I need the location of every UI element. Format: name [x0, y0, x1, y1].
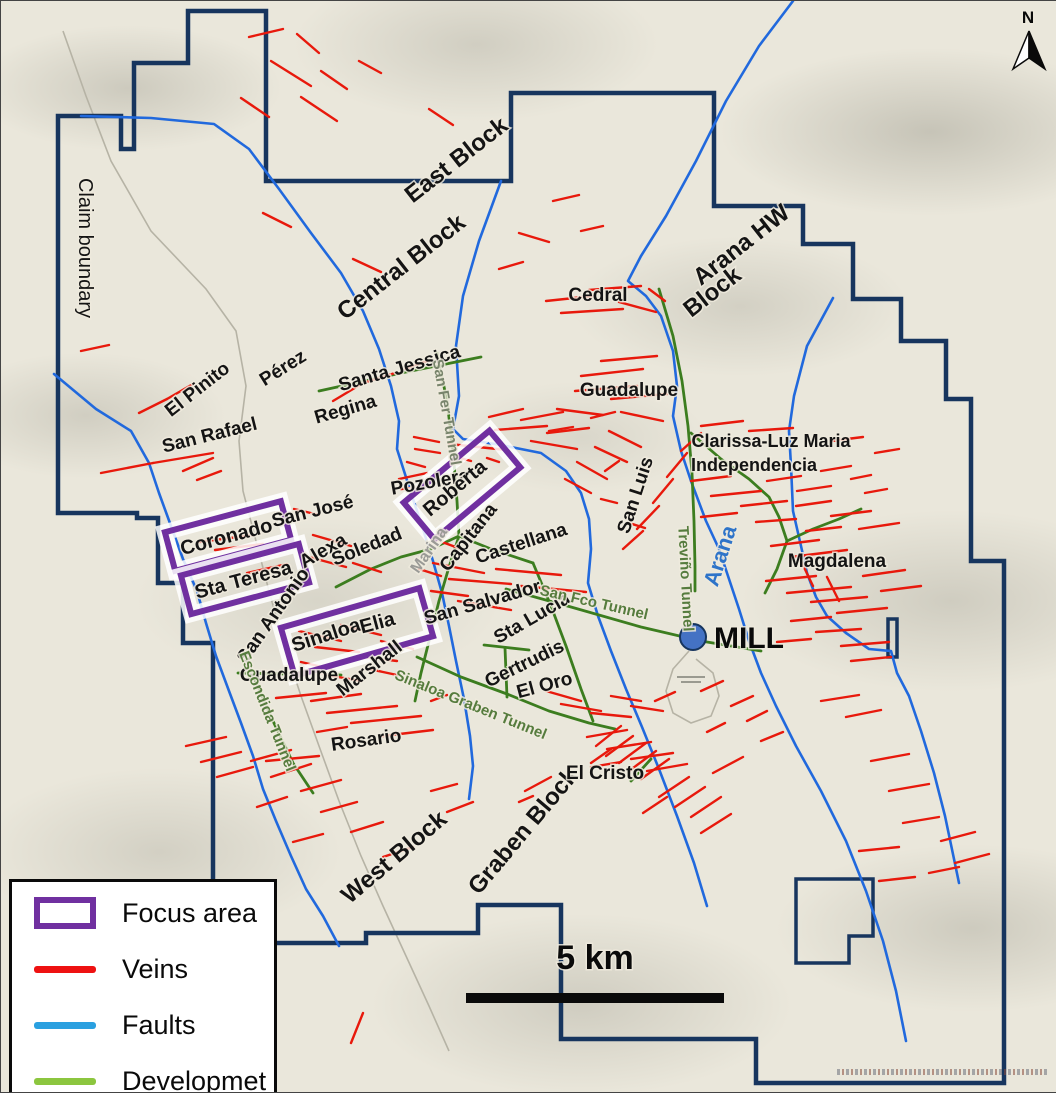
vein-line — [311, 694, 361, 701]
vein-line — [447, 802, 473, 812]
vein-line — [821, 466, 851, 471]
vein-line — [521, 412, 563, 420]
vein-line — [701, 421, 743, 426]
north-arrow-icon — [1029, 31, 1045, 69]
vein-line — [837, 608, 887, 613]
vein-line — [816, 629, 861, 632]
vein-line — [791, 617, 831, 621]
vein-line — [519, 233, 549, 242]
vein-line — [859, 847, 899, 851]
label-arana-fault: Arana — [698, 521, 741, 589]
vein-line — [351, 1013, 363, 1043]
vein-line — [609, 431, 641, 447]
vein-line — [713, 757, 743, 773]
vein-line — [263, 213, 291, 227]
legend-item-faults: Faults — [26, 1008, 274, 1042]
vein-line — [351, 716, 421, 723]
vein-line — [531, 441, 577, 449]
label-magdalena: Magdalena — [788, 551, 887, 572]
legend: Focus area Veins Faults Developmet — [9, 879, 277, 1093]
vein-line — [183, 458, 213, 471]
label-regina: Regina — [312, 391, 379, 429]
vein-line — [667, 453, 687, 477]
vein-line — [767, 476, 801, 481]
vein-line — [605, 461, 619, 471]
vein-line — [197, 471, 221, 480]
vein-line — [889, 784, 929, 791]
vein-line — [647, 764, 687, 771]
vein-line — [499, 262, 523, 269]
label-north-n: N — [1022, 8, 1034, 27]
vein-line — [431, 784, 457, 791]
vein-line — [611, 696, 641, 701]
label-cedral: Cedral — [568, 285, 627, 306]
vein-line — [487, 458, 499, 462]
label-perez: Pérez — [256, 346, 310, 391]
scale-bar — [466, 993, 724, 1003]
vein-line — [561, 704, 601, 711]
vein-line — [711, 491, 761, 496]
vein-line — [903, 817, 939, 823]
vein-line — [429, 109, 453, 125]
label-el-cristo: El Cristo — [566, 763, 644, 784]
claim-map: Claim boundaryEast BlockCentral BlockAra… — [0, 0, 1056, 1093]
map-attribution-microtext — [837, 1069, 1049, 1075]
vein-line — [495, 426, 547, 430]
vein-line — [621, 412, 663, 421]
vein-line — [731, 696, 753, 706]
vein-line — [655, 692, 675, 701]
vein-line — [747, 711, 767, 721]
label-scale: 5 km — [556, 939, 634, 977]
vein-line — [653, 479, 673, 503]
vein-line — [941, 832, 975, 841]
vein-line — [881, 586, 921, 591]
vein-line — [595, 447, 627, 462]
vein-line — [787, 587, 851, 593]
vein-line — [701, 814, 731, 833]
vein-line — [691, 797, 721, 817]
vein-line — [359, 61, 381, 73]
legend-label: Faults — [122, 1010, 196, 1041]
vein-line — [257, 797, 287, 807]
vein-line — [846, 710, 881, 717]
vein-line — [317, 727, 347, 732]
vein-line — [601, 356, 657, 361]
vein-line — [561, 309, 623, 313]
vein-line — [201, 752, 241, 762]
north-arrow-icon — [1013, 31, 1029, 69]
vein-line — [771, 540, 819, 546]
vein-line — [821, 695, 859, 701]
vein-line — [865, 489, 887, 493]
label-clarissa: Clarissa-Luz Maria — [691, 431, 851, 451]
vein-line — [756, 519, 796, 522]
vein-line — [879, 877, 915, 881]
vein-line — [875, 449, 899, 453]
label-el-pinito: El Pinito — [161, 358, 234, 421]
vein-line — [489, 409, 523, 417]
development-swatch-icon — [34, 1078, 96, 1085]
vein-line — [321, 802, 357, 812]
vein-line — [217, 767, 253, 777]
development-line — [484, 645, 529, 650]
vein-line — [101, 463, 153, 473]
vein-line — [297, 34, 319, 53]
vein-line — [591, 713, 631, 717]
vein-line — [327, 706, 397, 713]
vein-line — [577, 462, 607, 479]
vein-line — [851, 475, 871, 479]
legend-item-veins: Veins — [26, 952, 274, 986]
legend-item-development: Developmet — [26, 1064, 274, 1093]
vein-line — [955, 854, 989, 863]
vein-line — [431, 591, 468, 596]
claim-boundary-detail — [796, 879, 873, 963]
vein-line — [707, 723, 725, 732]
vein-line — [271, 61, 311, 86]
vein-line — [701, 513, 737, 517]
label-san-luis: San Luis — [614, 454, 658, 536]
vein-line — [741, 501, 787, 506]
vein-line — [581, 369, 643, 376]
vein-line — [81, 345, 109, 351]
vein-line — [596, 726, 621, 746]
label-west-block: West Block — [336, 805, 453, 909]
vein-line — [796, 501, 831, 506]
vein-line — [929, 867, 959, 873]
label-mill: MILL — [714, 622, 784, 655]
legend-label: Veins — [122, 954, 188, 985]
vein-line — [449, 579, 511, 584]
vein-line — [859, 523, 899, 529]
legend-label: Focus area — [122, 898, 257, 929]
fault-line — [81, 116, 473, 799]
vein-line — [293, 834, 323, 842]
vein-line — [351, 822, 383, 832]
legend-label: Developmet — [122, 1066, 266, 1093]
vein-line — [414, 437, 439, 442]
vein-line — [649, 289, 665, 301]
vein-line — [186, 737, 226, 746]
vein-line — [601, 499, 617, 503]
vein-line — [701, 681, 723, 691]
focus-area-swatch-icon — [34, 897, 96, 929]
vein-line — [496, 569, 561, 575]
vein-line — [301, 97, 337, 121]
vein-line — [321, 71, 347, 89]
vein-line — [761, 732, 783, 741]
vein-line — [691, 476, 731, 481]
label-central-block: Central Block — [332, 208, 471, 325]
label-guadalupe-east: Guadalupe — [580, 380, 678, 401]
vein-line — [553, 195, 579, 201]
legend-item-focus-area: Focus area — [26, 896, 274, 930]
vein-line — [415, 449, 440, 453]
vein-line — [643, 797, 667, 813]
faults-swatch-icon — [34, 1022, 96, 1029]
label-rosario: Rosario — [330, 725, 403, 756]
label-claim-boundary: Claim boundary — [74, 178, 96, 318]
veins-swatch-icon — [34, 966, 96, 973]
vein-line — [851, 657, 891, 661]
vein-line — [831, 511, 871, 516]
vein-line — [581, 226, 603, 231]
vein-line — [797, 486, 831, 491]
vein-line — [407, 462, 425, 467]
label-independencia: Independencia — [691, 455, 818, 475]
vein-line — [675, 787, 705, 807]
vein-line — [871, 754, 909, 761]
